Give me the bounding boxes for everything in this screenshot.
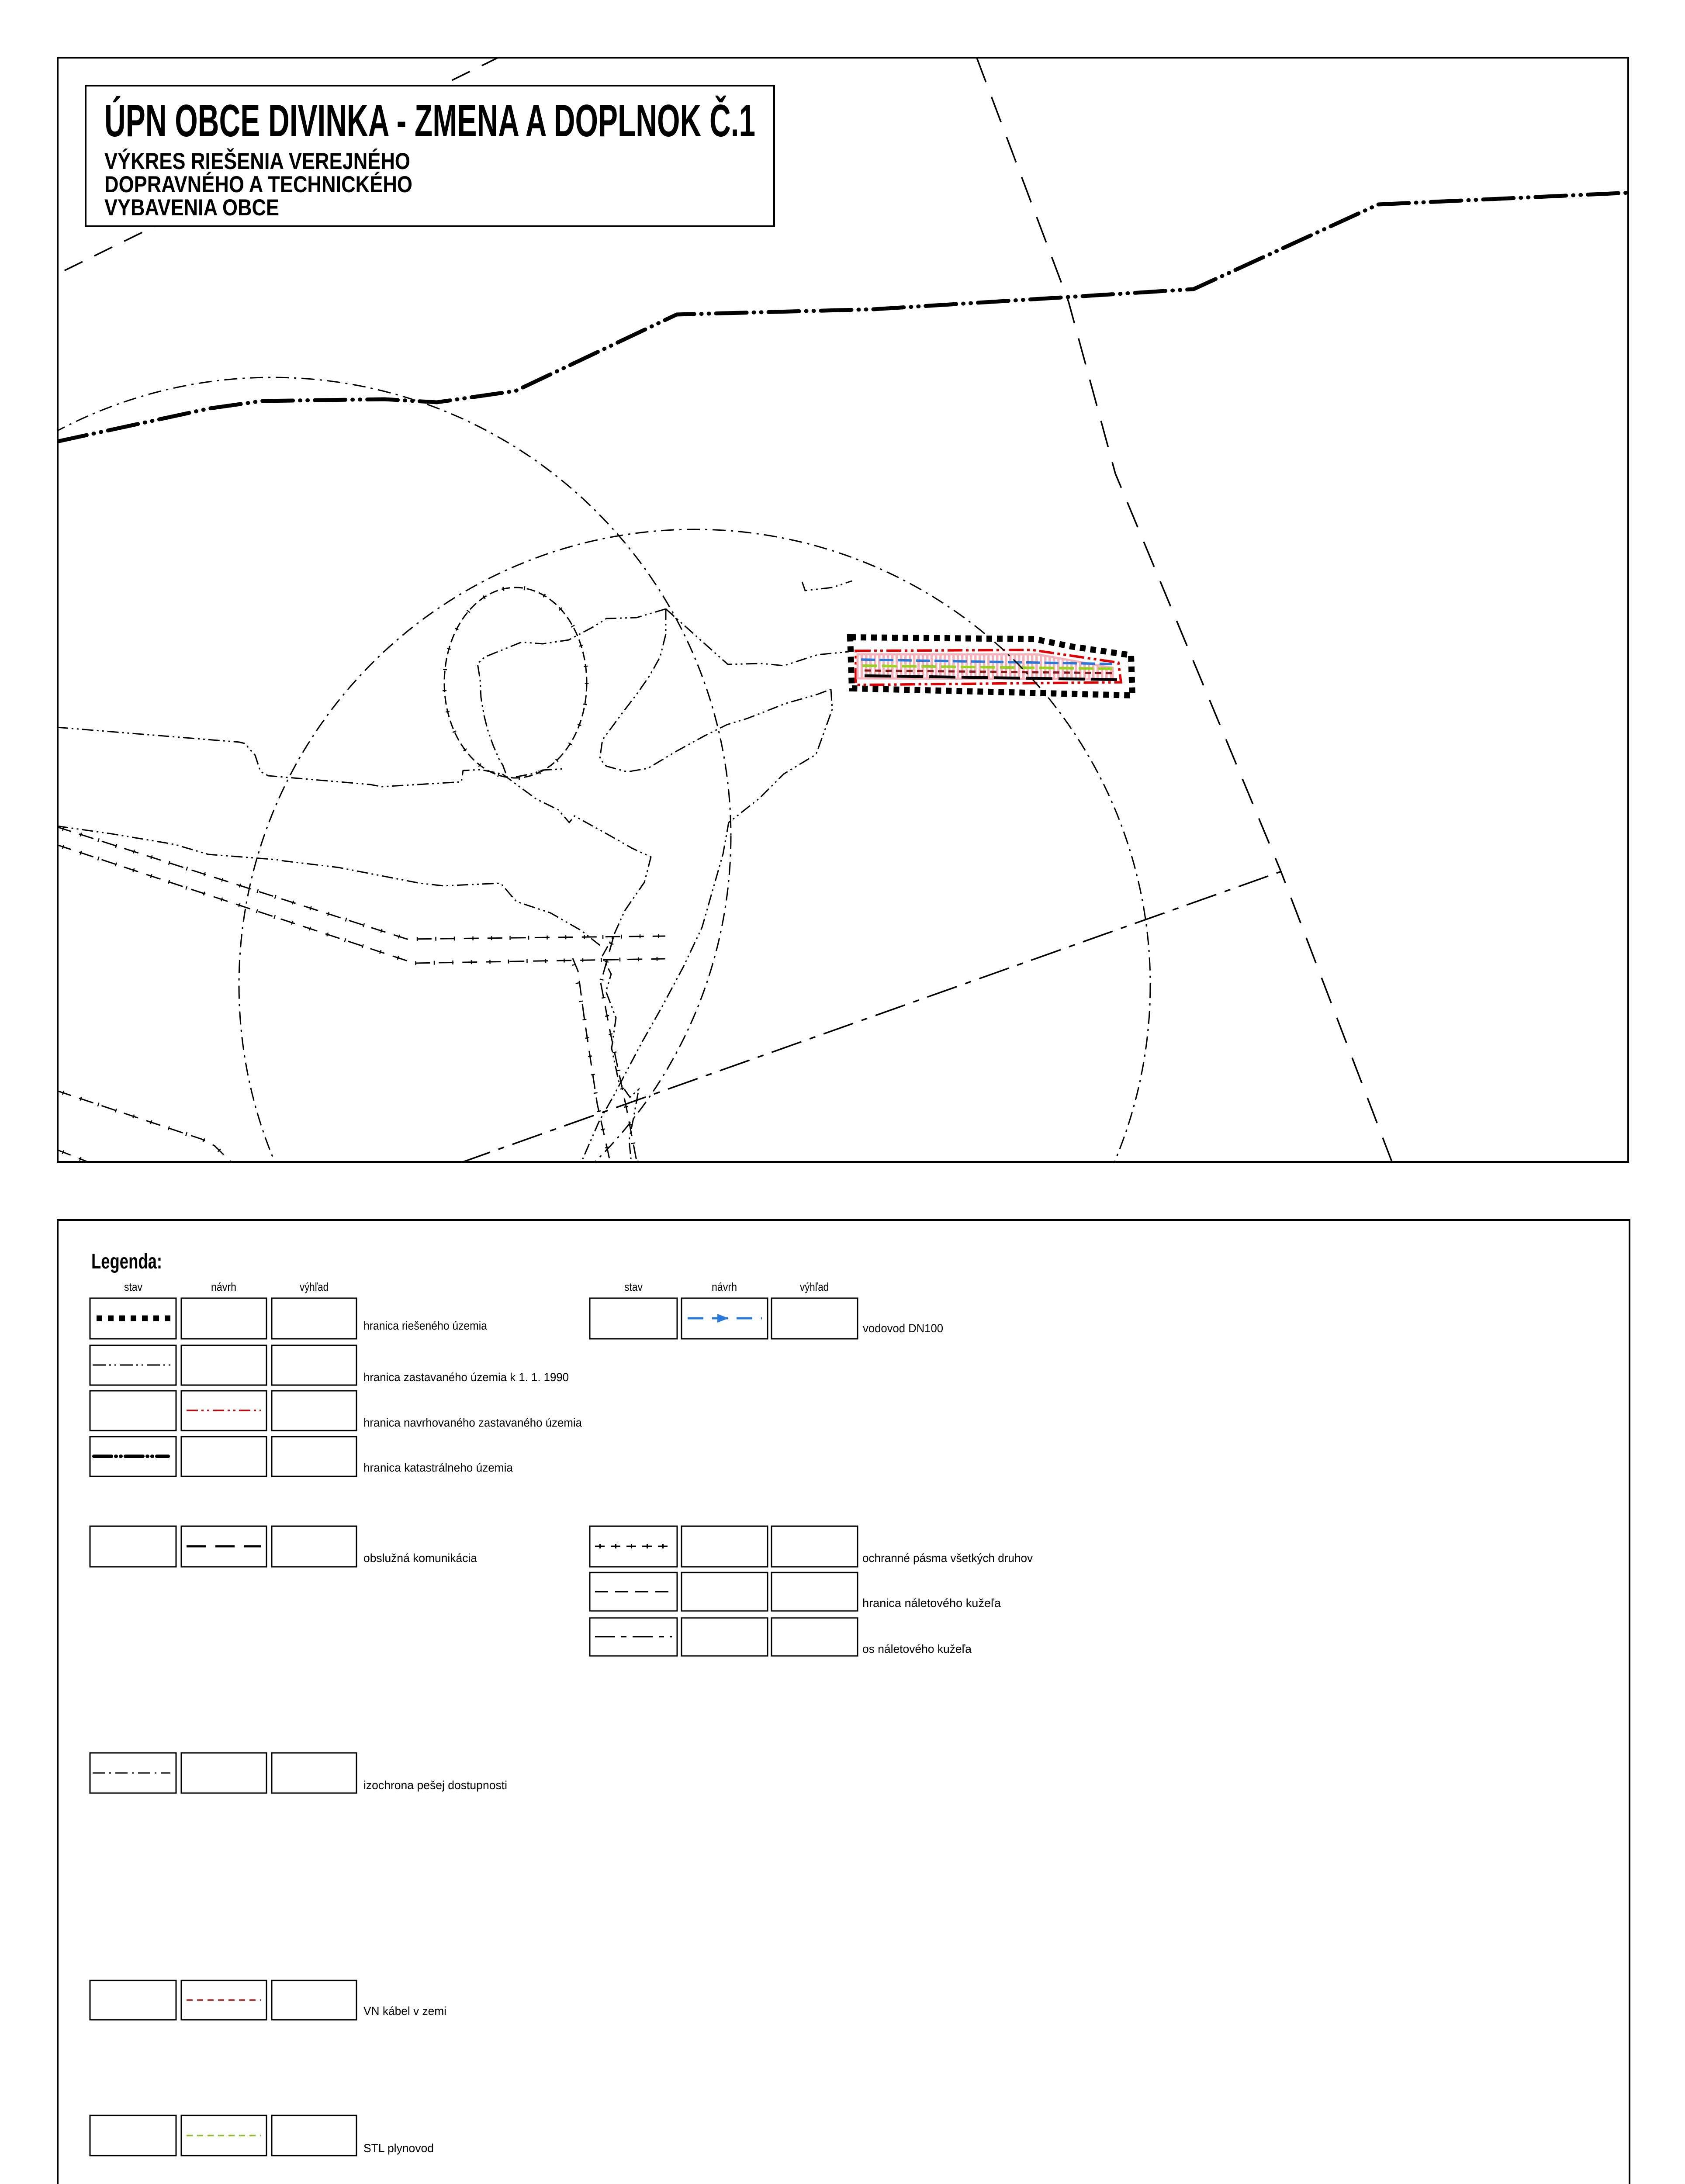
svg-text:Legenda:: Legenda: bbox=[91, 1250, 162, 1273]
svg-text:stav: stav bbox=[624, 1280, 643, 1293]
svg-text:hranica riešeného územia: hranica riešeného územia bbox=[363, 1319, 488, 1332]
svg-text:STL plynovod: STL plynovod bbox=[363, 2142, 434, 2155]
svg-text:os náletového kužeľa: os náletového kužeľa bbox=[862, 1642, 972, 1655]
svg-text:DOPRAVNÉHO A TECHNICKÉHO: DOPRAVNÉHO A TECHNICKÉHO bbox=[104, 171, 412, 197]
svg-text:VYBAVENIA OBCE: VYBAVENIA OBCE bbox=[104, 195, 279, 221]
svg-text:ÚPN OBCE DIVINKA - ZMENA A DOP: ÚPN OBCE DIVINKA - ZMENA A DOPLNOK Č.1 bbox=[104, 95, 755, 146]
svg-text:hranica náletového kužeľa: hranica náletového kužeľa bbox=[862, 1597, 1001, 1610]
svg-text:návrh: návrh bbox=[211, 1280, 236, 1293]
svg-text:stav: stav bbox=[124, 1280, 142, 1293]
svg-text:hranica navrhovaného zastavané: hranica navrhovaného zastavaného územia bbox=[363, 1416, 582, 1429]
svg-text:obslužná komunikácia: obslužná komunikácia bbox=[363, 1552, 477, 1565]
svg-text:vodovod DN100: vodovod DN100 bbox=[863, 1322, 943, 1335]
svg-text:hranica zastavaného územia k 1: hranica zastavaného územia k 1. 1. 1990 bbox=[363, 1371, 569, 1384]
svg-text:VN kábel v zemi: VN kábel v zemi bbox=[363, 2004, 446, 2018]
svg-text:výhľad: výhľad bbox=[800, 1280, 829, 1293]
svg-text:návrh: návrh bbox=[712, 1280, 737, 1293]
svg-text:VÝKRES RIEŠENIA VEREJNÉHO: VÝKRES RIEŠENIA VEREJNÉHO bbox=[104, 148, 410, 174]
svg-text:izochrona pešej dostupnosti: izochrona pešej dostupnosti bbox=[363, 1779, 507, 1792]
svg-text:výhľad: výhľad bbox=[300, 1280, 329, 1293]
svg-text:hranica katastrálneho územia: hranica katastrálneho územia bbox=[363, 1461, 513, 1474]
svg-text:ochranné pásma všetkých druhov: ochranné pásma všetkých druhov bbox=[862, 1552, 1033, 1565]
